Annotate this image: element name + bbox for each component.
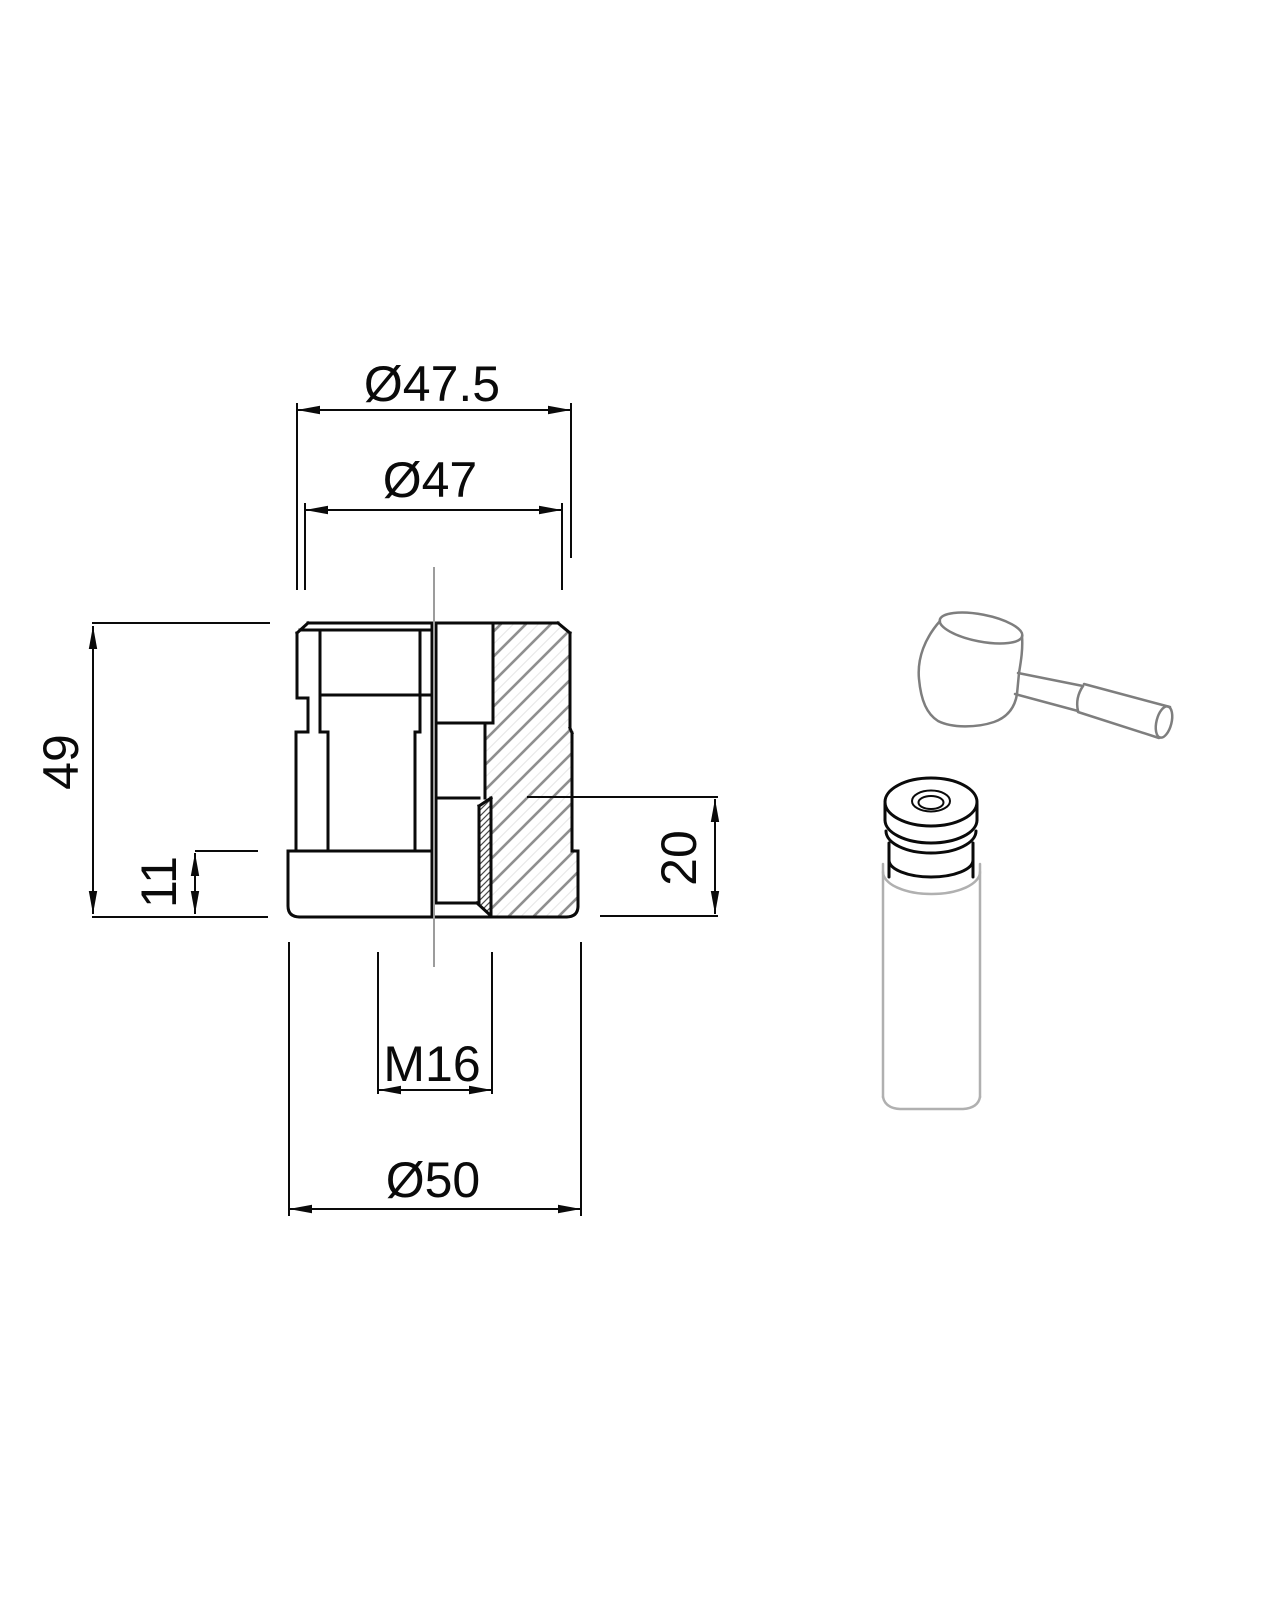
dimensions: Ø47.5 Ø47 49 11 20 <box>33 356 719 1216</box>
fitting-stem <box>1015 673 1083 711</box>
dim-label-m16: M16 <box>383 1036 480 1092</box>
technical-drawing-page: Ø47.5 Ø47 49 11 20 <box>0 0 1280 1600</box>
fitting-body <box>919 621 1023 726</box>
sleeve-cap <box>885 778 977 877</box>
interior-view-edges <box>288 623 432 917</box>
cap-hole-inner <box>919 796 944 809</box>
dim-label-d475: Ø47.5 <box>364 356 500 412</box>
thread-zone-hatch <box>479 798 491 915</box>
fitting-tip-end <box>1153 705 1175 740</box>
sleeve-body <box>883 864 980 1109</box>
main-section-view <box>288 567 578 967</box>
fitting-stem-joint <box>1077 686 1083 711</box>
dim-label-h11: 11 <box>131 856 187 908</box>
dim-flange-height: 11 <box>131 851 258 914</box>
section-hatch-area <box>485 623 578 916</box>
dim-label-d47: Ø47 <box>383 452 478 508</box>
dim-label-t20: 20 <box>651 830 707 886</box>
dim-label-h49: 49 <box>33 734 89 790</box>
sleeve-assembly <box>883 778 980 1109</box>
dim-label-d50: Ø50 <box>386 1152 481 1208</box>
ball-end-fitting <box>919 607 1175 740</box>
drawing-svg: Ø47.5 Ø47 49 11 20 <box>0 0 1280 1600</box>
fitting-top-face <box>937 607 1025 650</box>
dim-thread-size: M16 <box>378 952 492 1094</box>
